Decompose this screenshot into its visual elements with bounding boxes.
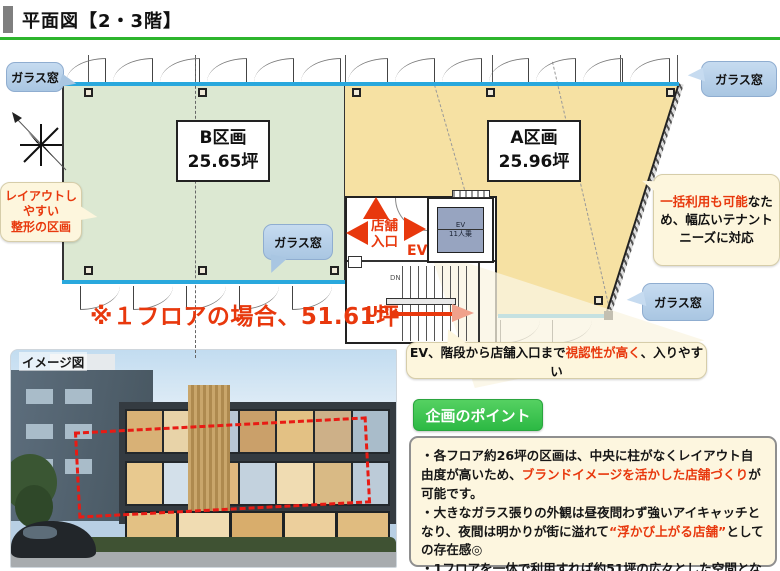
window-arc-icon	[160, 58, 200, 82]
pipe-shaft	[348, 256, 362, 268]
column	[330, 266, 339, 275]
glass-window-callout: ガラス窓	[263, 224, 333, 260]
up-arrow-line	[396, 312, 454, 316]
glass-window-line-top	[62, 82, 679, 86]
elevator-cabin: EV 11人乗	[437, 207, 484, 253]
bulk-use-callout: 一括利用も可能なため、幅広いテナントニーズに対応	[653, 174, 780, 266]
north-compass-icon	[6, 104, 76, 180]
visibility-pre-text: EV、階段から店舗入口まで	[410, 345, 566, 360]
points-title-badge: 企画のポイント	[413, 399, 543, 431]
column	[486, 88, 495, 97]
window-arc-icon	[442, 58, 482, 82]
glass-window-text: ガラス窓	[654, 294, 702, 311]
points-box: ・各フロア約26坪の区画は、中央に柱がなくレイアウト自由度が高いため、ブランドイ…	[409, 436, 777, 567]
window-arc-icon	[536, 58, 576, 82]
header-accent-bar	[3, 6, 13, 33]
glass-window-text: ガラス窓	[274, 234, 322, 251]
visibility-callout: EV、階段から店舗入口まで視認性が高く、入りやすい	[406, 342, 707, 379]
entrance-arrow-up-icon	[363, 197, 389, 219]
glass-window-callout: ガラス窓	[642, 283, 714, 321]
glass-window-text: ガラス窓	[715, 71, 763, 88]
grid-tick	[677, 55, 678, 83]
unit-b-label: B区画 25.65坪	[176, 120, 270, 182]
entrance-arrow-right-icon	[404, 217, 426, 241]
column	[84, 88, 93, 97]
column	[198, 88, 207, 97]
window-arc-icon	[207, 58, 247, 82]
window-arc-icon	[395, 58, 435, 82]
shop-entrance-label: 店舗 入口	[371, 219, 398, 250]
window-arc-icon	[254, 58, 294, 82]
up-label: UP	[366, 303, 389, 321]
ev-label: EV	[407, 243, 427, 259]
column	[352, 88, 361, 97]
grid-tick	[345, 55, 346, 83]
core-wall	[478, 262, 480, 342]
window-arc-icon	[583, 58, 623, 82]
points-bullet-3: ・1フロアを一体で利用すれば約51坪の広々とした空間となり、大型店舗やゆったりと…	[421, 560, 765, 571]
dn-label: DN	[390, 274, 401, 282]
points-bullet-1: ・各フロア約26坪の区画は、中央に柱がなくレイアウト自由度が高いため、ブランドイ…	[421, 447, 765, 504]
column	[84, 266, 93, 275]
window-arc-icon	[301, 58, 341, 82]
one-floor-note: ※１フロアの場合、51.61坪	[90, 297, 400, 331]
elevator-machine-hatch	[452, 190, 490, 198]
glass-window-line-b-bottom	[62, 280, 346, 284]
glass-window-callout: ガラス窓	[701, 61, 777, 97]
unit-a-area-value: 25.96坪	[497, 151, 571, 175]
highlight-dashed-frame	[74, 416, 371, 518]
column	[594, 296, 603, 305]
points-bullet-2: ・大きなガラス張りの外観は昼夜問わず強いアイキャッチとなり、夜間は明かりが街に溢…	[421, 504, 765, 561]
elevator-capacity-label: 11人乗	[449, 230, 472, 239]
layout-callout: レイアウトしやすい 整形の区画	[0, 182, 82, 242]
image-figure-label: イメージ図	[19, 352, 87, 371]
callout-tail	[687, 68, 705, 85]
visibility-red-text: 視認性が高く	[566, 345, 641, 360]
building-photo: イメージ図	[10, 349, 397, 568]
flyer-page: 平面図【2・3階】	[0, 0, 780, 571]
column	[198, 266, 207, 275]
unit-a-label: A区画 25.96坪	[487, 120, 581, 182]
page-title: 平面図【2・3階】	[22, 7, 182, 33]
bulk-use-red-text: 一括利用も可能	[660, 194, 748, 209]
window-arc-icon	[113, 58, 153, 82]
unit-b-area-value: 25.65坪	[186, 151, 260, 175]
photo-car-window	[23, 526, 58, 539]
entrance-arrow-left-icon	[346, 221, 368, 245]
callout-tail	[626, 291, 647, 309]
unit-a-name: A区画	[497, 127, 571, 151]
column	[666, 88, 675, 97]
elevator-rail-line	[437, 229, 484, 230]
glass-window-text: ガラス窓	[11, 69, 59, 86]
up-arrow-head-icon	[452, 304, 474, 322]
window-arc-icon	[630, 58, 670, 82]
layout-callout-text: レイアウトしやすい 整形の区画	[1, 189, 81, 236]
unit-b-name: B区画	[186, 127, 260, 151]
glass-window-callout: ガラス窓	[6, 62, 64, 92]
header-underline	[0, 37, 780, 40]
window-arc-icon	[348, 58, 388, 82]
window-arc-icon	[489, 58, 529, 82]
